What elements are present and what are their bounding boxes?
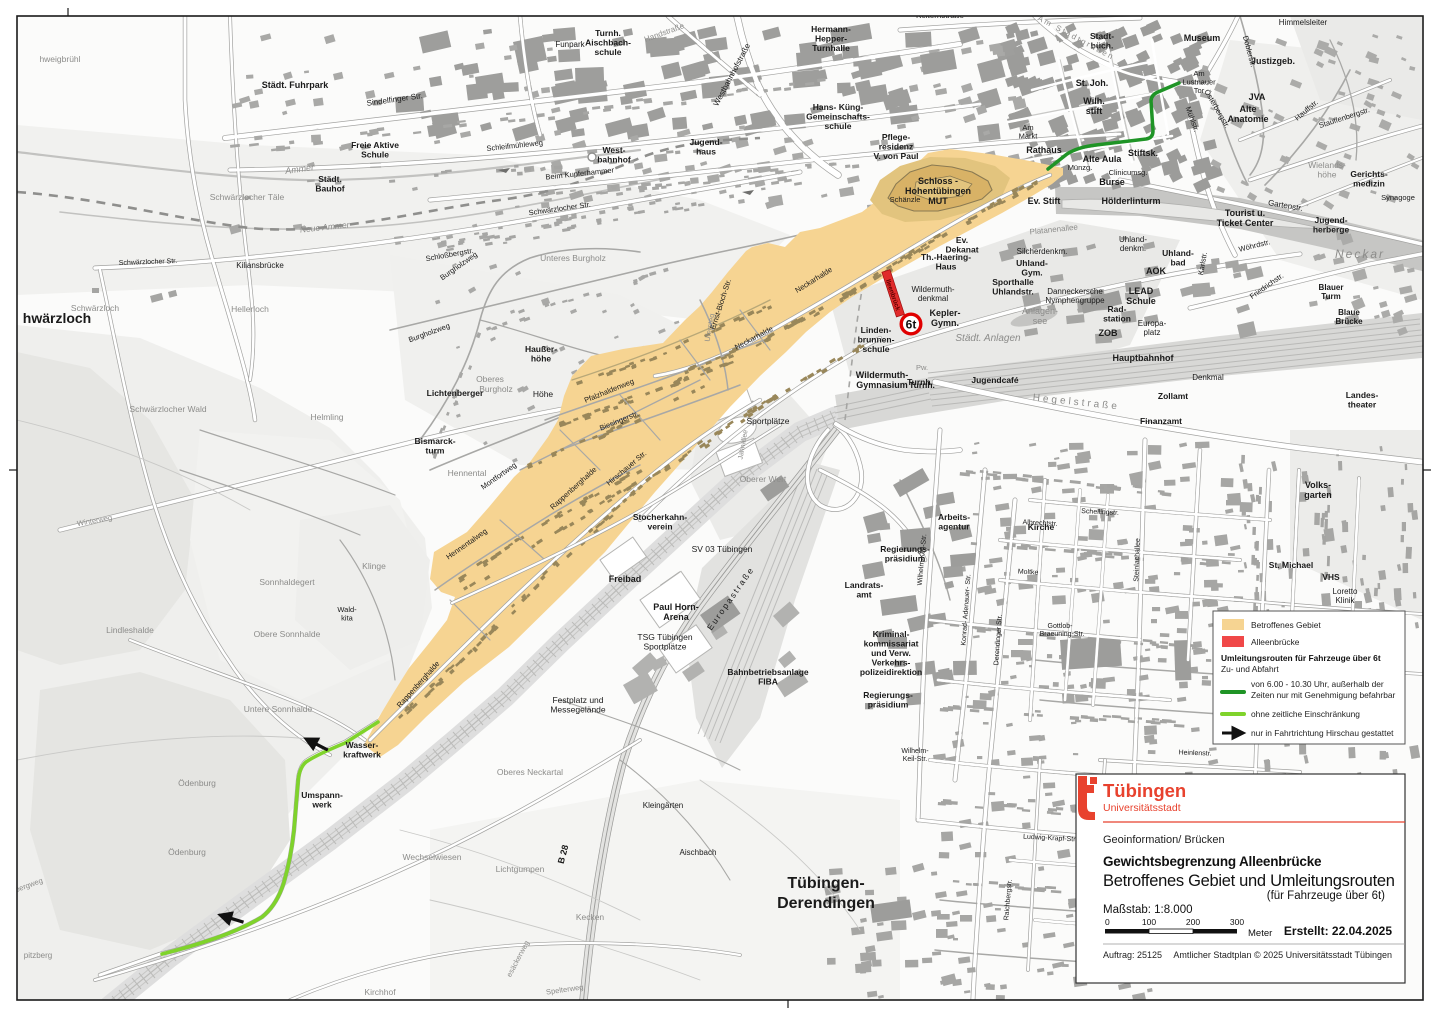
svg-text:ZOB: ZOB <box>1099 328 1118 338</box>
svg-text:von 6.00 - 10.30 Uhr, außerhal: von 6.00 - 10.30 Uhr, außerhalb der <box>1251 679 1384 689</box>
svg-text:0: 0 <box>1105 917 1110 927</box>
svg-text:Untere Sonnhalde: Untere Sonnhalde <box>244 704 313 714</box>
svg-text:Oberer Wert: Oberer Wert <box>740 474 787 484</box>
svg-text:Meter: Meter <box>1248 928 1272 939</box>
svg-text:Hellerloch: Hellerloch <box>231 304 269 314</box>
svg-text:Amtlicher Stadtplan © 2025 Uni: Amtlicher Stadtplan © 2025 Universitätss… <box>1173 950 1392 960</box>
svg-text:Himmelsleiter: Himmelsleiter <box>1279 18 1328 27</box>
svg-text:Unteres Burgholz: Unteres Burgholz <box>540 253 606 263</box>
svg-text:Sportplätze: Sportplätze <box>747 416 790 426</box>
svg-text:SporthalleUhlandstr.: SporthalleUhlandstr. <box>992 277 1034 297</box>
svg-text:Zollamt: Zollamt <box>1158 391 1188 401</box>
svg-text:Wilhelm-Keil-Str.: Wilhelm-Keil-Str. <box>901 748 929 763</box>
svg-text:Jugend-herberge: Jugend-herberge <box>1313 215 1350 235</box>
svg-text:Kepler-Gymn.: Kepler-Gymn. <box>929 308 960 328</box>
svg-text:Tübingen: Tübingen <box>1103 780 1186 801</box>
svg-text:Funpark: Funpark <box>555 40 585 49</box>
svg-text:JVA: JVA <box>1249 92 1266 102</box>
svg-text:Braeuning-Str.: Braeuning-Str. <box>1040 631 1085 638</box>
svg-text:100: 100 <box>1142 917 1156 927</box>
svg-text:Landes-theater: Landes-theater <box>1346 390 1379 410</box>
svg-text:St. Michael: St. Michael <box>1269 560 1313 570</box>
svg-text:Uhland-denkm.: Uhland-denkm. <box>1119 235 1147 253</box>
svg-text:Betroffenes Gebiet und Umleitu: Betroffenes Gebiet und Umleitungsrouten <box>1103 872 1395 890</box>
svg-text:Jugendcafé: Jugendcafé <box>971 375 1019 385</box>
svg-text:Moltke: Moltke <box>1018 568 1039 576</box>
svg-text:LorettoKlinik: LorettoKlinik <box>1333 587 1358 605</box>
svg-text:Rathaus: Rathaus <box>1026 145 1062 155</box>
svg-text:Linden-brunnen-schule: Linden-brunnen-schule <box>858 325 895 354</box>
svg-text:Ödenburg: Ödenburg <box>178 778 216 788</box>
svg-text:Arbeits-agentur: Arbeits-agentur <box>938 512 970 532</box>
svg-text:SV 03 Tübingen: SV 03 Tübingen <box>692 544 753 554</box>
svg-text:Städt.Bauhof: Städt.Bauhof <box>315 174 344 194</box>
svg-text:Gerichts-medizin: Gerichts-medizin <box>1350 169 1387 189</box>
svg-text:Hennental: Hennental <box>448 468 487 478</box>
svg-text:nur in Fahrtrichtung Hirschau: nur in Fahrtrichtung Hirschau gestattet <box>1251 728 1394 738</box>
svg-text:Lichtenberger: Lichtenberger <box>427 388 484 398</box>
svg-text:Zeiten nur mit Genehmigung bef: Zeiten nur mit Genehmigung befahrbar <box>1251 690 1396 700</box>
svg-text:Festplatz undMessegelände: Festplatz undMessegelände <box>550 695 606 715</box>
svg-text:6t: 6t <box>906 318 917 332</box>
svg-text:pitzberg: pitzberg <box>24 951 52 960</box>
svg-text:DanneckerscheNymphengruppe: DanneckerscheNymphengruppe <box>1045 287 1105 305</box>
svg-text:Wildermuth-Gymnasium: Wildermuth-Gymnasium <box>856 370 908 390</box>
svg-text:ohne zeitliche Einschränkung: ohne zeitliche Einschränkung <box>1251 709 1360 719</box>
svg-text:Burse: Burse <box>1099 177 1125 187</box>
svg-text:AOK: AOK <box>1146 266 1167 276</box>
svg-text:Ev. Stift: Ev. Stift <box>1028 196 1061 206</box>
svg-text:Wechselwiesen: Wechselwiesen <box>403 852 462 862</box>
svg-text:Hauptbahnhof: Hauptbahnhof <box>1113 353 1175 363</box>
svg-text:Klinge: Klinge <box>362 561 386 571</box>
svg-text:Oberes Neckartal: Oberes Neckartal <box>497 767 563 777</box>
svg-text:Betroffenes Gebiet: Betroffenes Gebiet <box>1251 620 1321 630</box>
svg-text:Freibad: Freibad <box>609 574 642 584</box>
svg-text:Auftrag: 25125: Auftrag: 25125 <box>1103 950 1162 960</box>
svg-text:Kecken: Kecken <box>576 912 605 922</box>
svg-text:Silcherdenkm.: Silcherdenkm. <box>1017 247 1068 256</box>
svg-text:Höhe: Höhe <box>533 389 554 399</box>
svg-text:300: 300 <box>1230 917 1244 927</box>
svg-text:Stiftsk.: Stiftsk. <box>1128 148 1158 158</box>
svg-text:Gottlob-: Gottlob- <box>1048 623 1074 630</box>
svg-text:Geoinformation/ Brücken: Geoinformation/ Brücken <box>1103 834 1225 846</box>
svg-text:Wasser-kraftwerk: Wasser-kraftwerk <box>343 740 381 760</box>
svg-text:Lichtgumpen: Lichtgumpen <box>496 864 545 874</box>
svg-text:Erstellt: 22.04.2025: Erstellt: 22.04.2025 <box>1284 924 1392 938</box>
svg-text:Sonnhaldegert: Sonnhaldegert <box>259 577 315 587</box>
svg-text:Ödenburg: Ödenburg <box>168 847 206 857</box>
svg-text:Kleingärten: Kleingärten <box>643 801 683 810</box>
svg-text:Umleitungsrouten für Fahrzeuge: Umleitungsrouten für Fahrzeuge über 6t <box>1221 653 1381 663</box>
svg-text:200: 200 <box>1186 917 1200 927</box>
svg-text:Städt. Fuhrpark: Städt. Fuhrpark <box>262 80 330 90</box>
svg-text:Städt. Anlagen: Städt. Anlagen <box>955 333 1021 344</box>
svg-text:Maßstab: 1:8.000: Maßstab: 1:8.000 <box>1103 904 1193 916</box>
svg-text:Finanzamt: Finanzamt <box>1140 416 1182 426</box>
svg-text:Synagoge: Synagoge <box>1381 193 1415 202</box>
svg-text:Turnh.: Turnh. <box>907 377 933 387</box>
svg-text:Universitätsstadt: Universitätsstadt <box>1103 802 1181 814</box>
svg-text:Pw.: Pw. <box>916 363 928 372</box>
svg-text:Wilh.stift: Wilh.stift <box>1083 96 1104 116</box>
svg-text:Burgholz: Burgholz <box>479 384 513 394</box>
svg-text:Clinicumsg.: Clinicumsg. <box>1109 168 1148 177</box>
svg-text:Aischbach: Aischbach <box>680 848 717 857</box>
svg-text:Museum: Museum <box>1184 33 1221 43</box>
svg-text:Helmling: Helmling <box>310 412 343 422</box>
svg-text:Alleenbrücke: Alleenbrücke <box>1251 637 1300 647</box>
svg-text:BlaueBrücke: BlaueBrücke <box>1335 308 1363 326</box>
svg-text:Münzg.: Münzg. <box>1068 163 1093 172</box>
svg-text:Schwärzlocher Wald: Schwärzlocher Wald <box>129 404 206 414</box>
svg-text:LEADSchule: LEADSchule <box>1126 286 1156 306</box>
svg-text:Schänzle: Schänzle <box>890 195 921 204</box>
svg-text:hwärzloch: hwärzloch <box>23 310 91 326</box>
svg-text:VHS: VHS <box>1322 572 1340 582</box>
svg-text:hweigbrühl: hweigbrühl <box>39 54 80 64</box>
svg-text:Volks-garten: Volks-garten <box>1304 480 1332 500</box>
svg-text:Schwärzlocher Täle: Schwärzlocher Täle <box>210 192 285 202</box>
svg-text:Lindleshalde: Lindleshalde <box>106 625 154 635</box>
svg-text:Neckar: Neckar <box>1335 247 1385 261</box>
svg-text:St. Joh.: St. Joh. <box>1076 78 1109 88</box>
svg-text:TSG TübingenSportplätze: TSG TübingenSportplätze <box>637 632 692 652</box>
svg-text:Regierungs-präsidium: Regierungs-präsidium <box>863 690 913 710</box>
svg-text:Hölderlinturm: Hölderlinturm <box>1101 196 1160 206</box>
svg-text:Kirchhof: Kirchhof <box>364 987 396 997</box>
svg-text:Kiliansbrücke: Kiliansbrücke <box>236 261 284 270</box>
svg-text:Oberes: Oberes <box>476 374 504 384</box>
svg-text:BlauerTurm: BlauerTurm <box>1319 283 1344 301</box>
svg-text:Zu- und Abfahrt: Zu- und Abfahrt <box>1221 664 1279 674</box>
svg-text:Hermann-Hepper-Turnhalle: Hermann-Hepper-Turnhalle <box>811 24 851 53</box>
svg-text:Heinlenstr.: Heinlenstr. <box>1178 749 1211 757</box>
svg-text:Denkmal: Denkmal <box>1192 373 1224 382</box>
svg-text:Obere Sonnhalde: Obere Sonnhalde <box>254 629 321 639</box>
svg-text:Gewichtsbegrenzung Alleenbrück: Gewichtsbegrenzung Alleenbrücke <box>1103 854 1322 869</box>
svg-text:(für Fahrzeuge über 6t): (für Fahrzeuge über 6t) <box>1267 890 1385 902</box>
